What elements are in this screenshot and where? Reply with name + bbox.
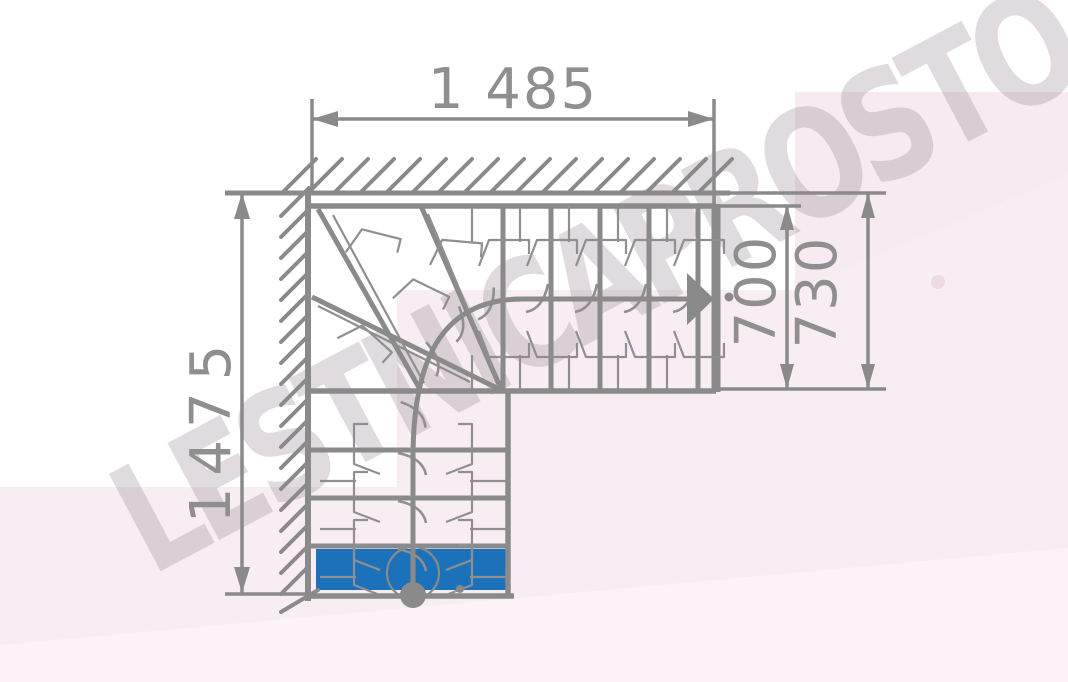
dimension-label-top: 1 485	[312, 62, 714, 118]
dimension-label-700: 700	[729, 211, 785, 371]
start-swing-circle	[387, 547, 439, 599]
walk-line-start-dot	[400, 582, 426, 608]
first-step-highlight	[316, 549, 506, 590]
small-dot-step	[456, 585, 464, 593]
pink-dot	[931, 275, 945, 289]
arrowhead	[234, 193, 250, 219]
dimension-label-left: 1475	[184, 318, 240, 538]
staircase-plan-page: LESTNICAPROSTO.RU	[0, 0, 1068, 682]
arrowhead	[861, 364, 875, 389]
dimension-label-730: 730	[790, 212, 846, 372]
